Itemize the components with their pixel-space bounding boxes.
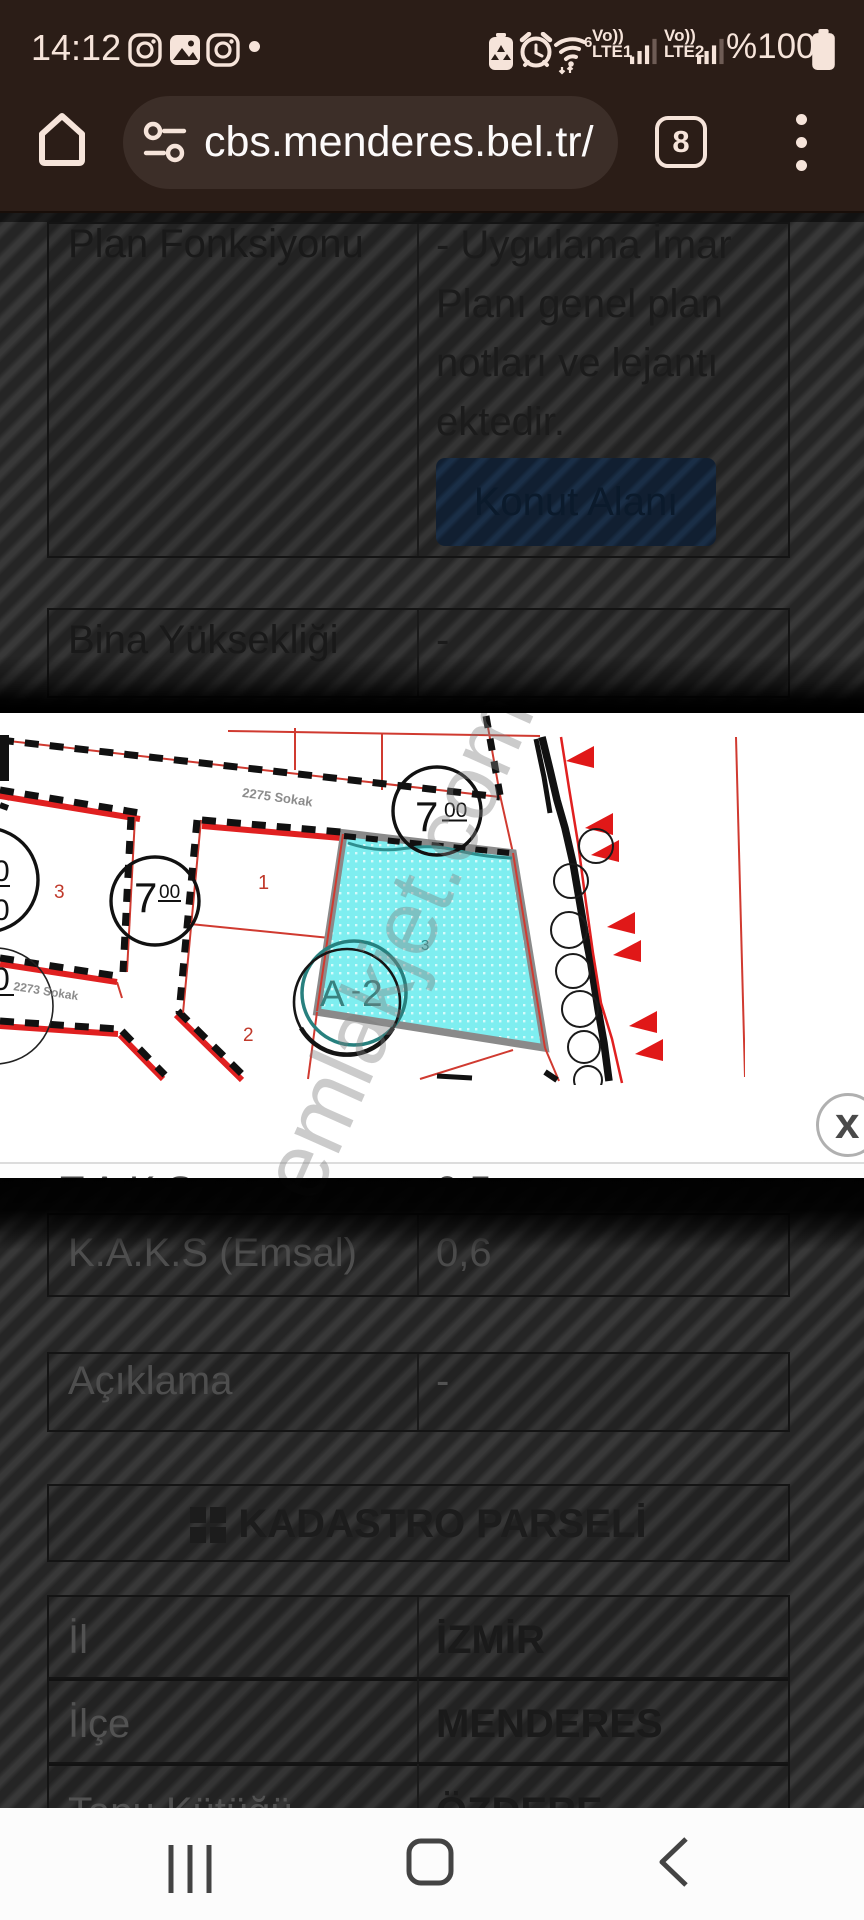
svg-text:7: 7 xyxy=(134,874,157,921)
svg-text:-: - xyxy=(351,974,361,1007)
svg-text:2: 2 xyxy=(243,1025,254,1046)
svg-text:2: 2 xyxy=(362,973,383,1014)
svg-text:1: 1 xyxy=(258,872,269,894)
svg-text:0: 0 xyxy=(0,894,10,927)
svg-text:00: 00 xyxy=(444,799,467,822)
svg-text:7: 7 xyxy=(415,793,438,840)
svg-text:0: 0 xyxy=(0,855,10,888)
svg-text:A: A xyxy=(320,973,345,1014)
svg-text:3: 3 xyxy=(54,882,65,903)
svg-text:3: 3 xyxy=(421,937,429,954)
svg-text:2275 Sokak: 2275 Sokak xyxy=(241,785,314,810)
svg-text:2273 Sokak: 2273 Sokak xyxy=(13,979,80,1003)
svg-text:0: 0 xyxy=(0,961,10,997)
svg-text:00: 00 xyxy=(159,882,180,903)
